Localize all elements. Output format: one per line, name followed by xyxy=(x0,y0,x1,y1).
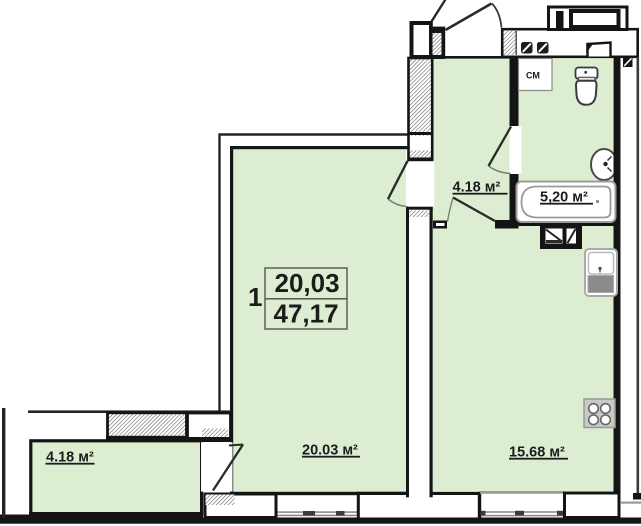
svg-text:СМ: СМ xyxy=(526,71,540,81)
svg-text:1: 1 xyxy=(248,282,262,312)
svg-text:20,03: 20,03 xyxy=(275,268,340,298)
svg-text:47,17: 47,17 xyxy=(274,298,339,328)
